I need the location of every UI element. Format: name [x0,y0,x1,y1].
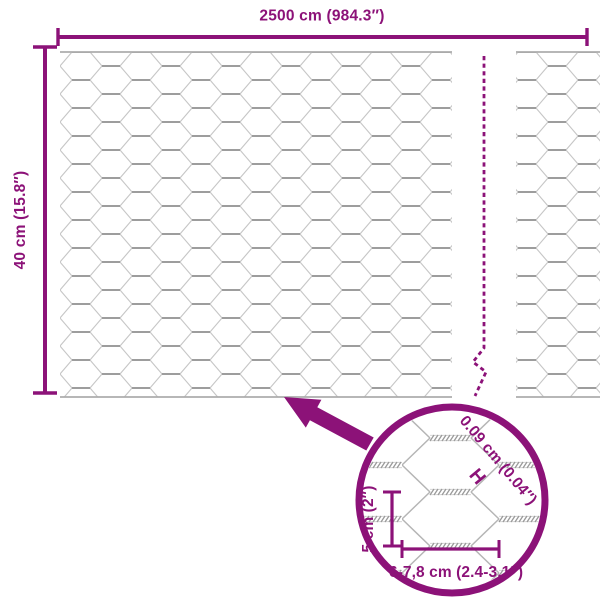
mesh-pattern-continued [516,52,600,397]
mesh-width-label: 6-7,8 cm (2.4-3.1″) [389,564,523,581]
roll-height-label: 40 cm (15.8″) [12,171,29,270]
total-length-label: 2500 cm (984.3″) [259,8,384,25]
roll-height-dimension: 40 cm (15.8″) [12,47,57,393]
diagram-canvas: 2500 cm (984.3″) 40 cm (15.8″) 0.09 cm (… [0,0,600,600]
break-line [473,56,486,396]
product-dimension-diagram: 2500 cm (984.3″) 40 cm (15.8″) 0.09 cm (… [0,0,600,600]
mesh-height-label: 5 cm (2″) [360,486,377,553]
magnifier-detail: 0.09 cm (0.04″) H 5 cm (2″) 6-7,8 cm (2.… [359,407,545,593]
zoom-arrow-icon [284,397,374,451]
continuation-mesh-panel [516,52,600,397]
mesh-pattern [60,52,452,397]
main-mesh-panel [60,52,452,397]
total-length-dimension: 2500 cm (984.3″) [58,8,587,47]
